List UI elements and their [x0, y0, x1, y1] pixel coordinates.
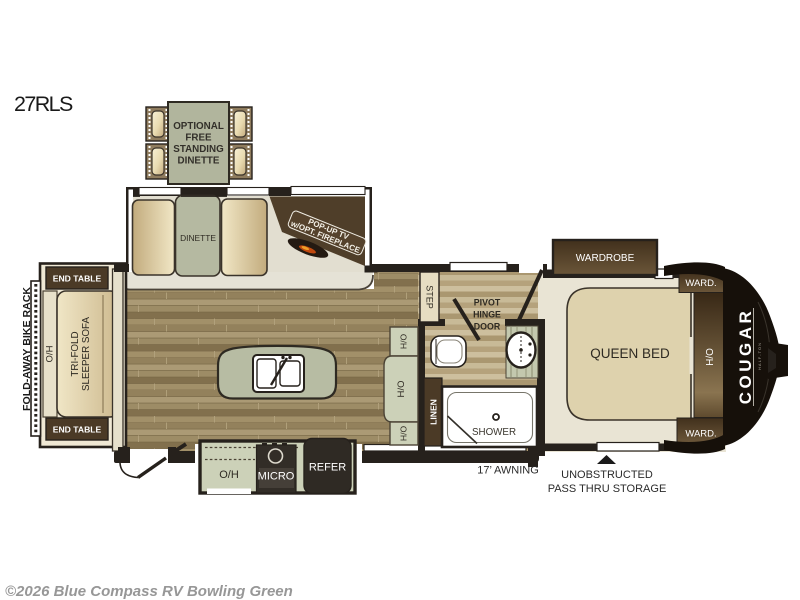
svg-text:H/O: H/O — [705, 348, 716, 366]
svg-text:PASS THRU STORAGE: PASS THRU STORAGE — [548, 483, 667, 495]
svg-text:PIVOT: PIVOT — [474, 298, 501, 308]
svg-text:DINETTE: DINETTE — [178, 156, 220, 167]
svg-text:END TABLE: END TABLE — [53, 425, 102, 435]
svg-text:FREE: FREE — [185, 133, 212, 144]
svg-text:DOOR: DOOR — [474, 322, 501, 332]
svg-text:QUEEN BED: QUEEN BED — [590, 346, 670, 361]
svg-text:UNOBSTRUCTED: UNOBSTRUCTED — [561, 469, 653, 481]
svg-text:WARD.: WARD. — [685, 429, 716, 440]
svg-text:MICRO: MICRO — [258, 471, 295, 483]
svg-text:REFER: REFER — [309, 462, 346, 474]
svg-text:FOLD-AWAY BIKE RACK: FOLD-AWAY BIKE RACK — [22, 286, 33, 411]
svg-text:HALF-TON: HALF-TON — [757, 342, 762, 370]
svg-text:©2026 Blue Compass RV Bowling: ©2026 Blue Compass RV Bowling Green — [5, 583, 293, 600]
svg-text:STEP: STEP — [425, 285, 435, 309]
svg-text:END TABLE: END TABLE — [53, 274, 102, 284]
svg-text:SHOWER: SHOWER — [472, 427, 516, 438]
svg-text:DINETTE: DINETTE — [180, 233, 216, 243]
svg-text:27RLS: 27RLS — [14, 92, 73, 116]
svg-text:17’ AWNING: 17’ AWNING — [477, 465, 539, 477]
svg-text:TRI-FOLD: TRI-FOLD — [70, 331, 81, 376]
svg-text:WARD.: WARD. — [685, 278, 716, 289]
svg-text:STANDING: STANDING — [173, 144, 224, 155]
svg-text:HINGE: HINGE — [473, 310, 501, 320]
svg-text:LINEN: LINEN — [429, 399, 439, 425]
svg-text:WARDROBE: WARDROBE — [576, 253, 635, 264]
svg-text:O/H: O/H — [399, 426, 409, 441]
svg-text:O/H: O/H — [399, 334, 409, 349]
svg-text:COUGAR: COUGAR — [736, 308, 755, 405]
svg-text:O/H: O/H — [219, 469, 239, 481]
svg-text:SLEEPER SOFA: SLEEPER SOFA — [81, 317, 92, 392]
svg-text:O/H: O/H — [395, 381, 406, 398]
svg-text:OPTIONAL: OPTIONAL — [173, 121, 224, 132]
svg-text:O/H: O/H — [45, 345, 56, 362]
